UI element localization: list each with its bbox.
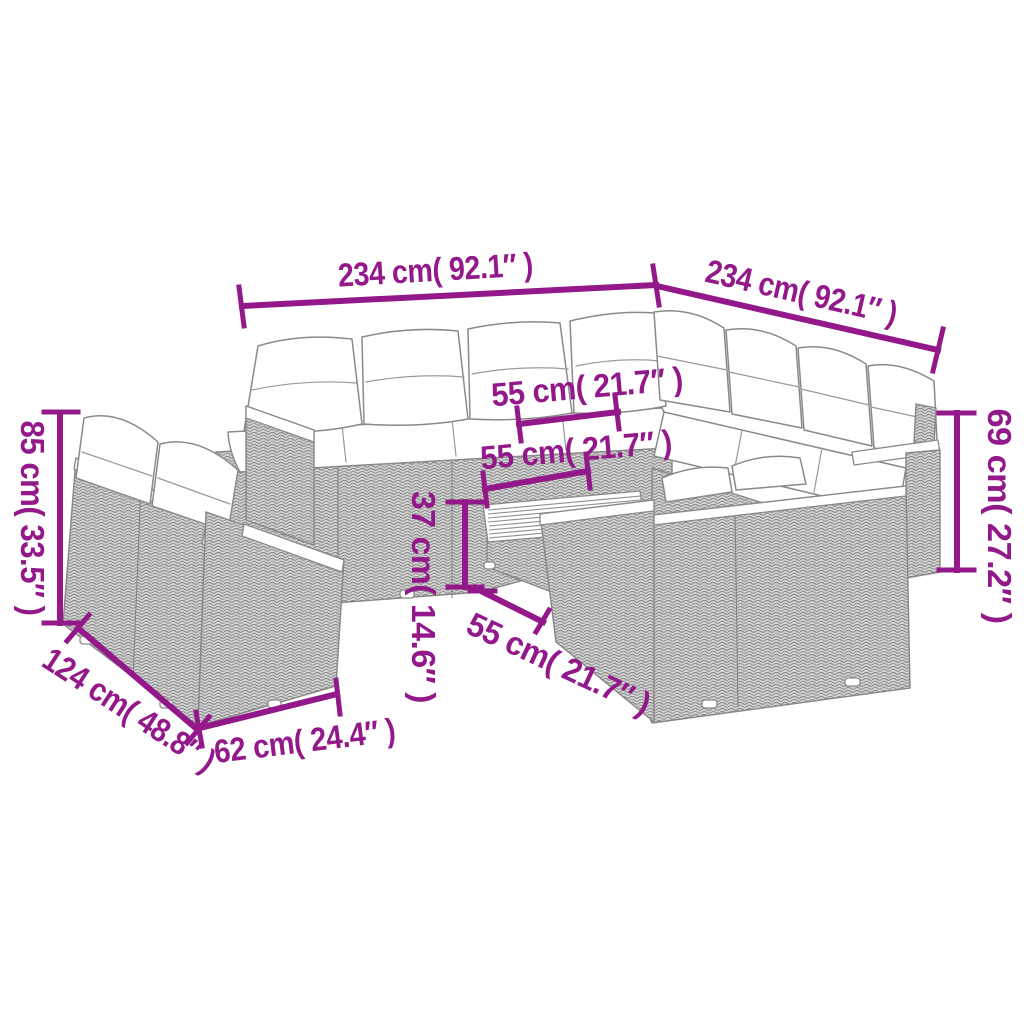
dim-armrest-height: 69 cm( 27.2″ )	[939, 409, 1018, 624]
dim-label-backrest-height: 85 cm( 33.5″ )	[14, 421, 51, 616]
dim-left-sofa-run-width: 234 cm( 92.1″ )	[239, 245, 659, 326]
dim-label-armrest-height: 69 cm( 27.2″ )	[981, 409, 1018, 624]
dim-label-left-sofa-run-width: 234 cm( 92.1″ )	[337, 245, 534, 293]
dim-label-table-height: 37 cm( 14.6″ )	[405, 491, 442, 703]
diagram-canvas: 234 cm( 92.1″ ) 234 cm( 92.1″ ) 85 cm( 3…	[0, 0, 1024, 1024]
product-dimension-diagram: 234 cm( 92.1″ ) 234 cm( 92.1″ ) 85 cm( 3…	[0, 0, 1024, 1024]
